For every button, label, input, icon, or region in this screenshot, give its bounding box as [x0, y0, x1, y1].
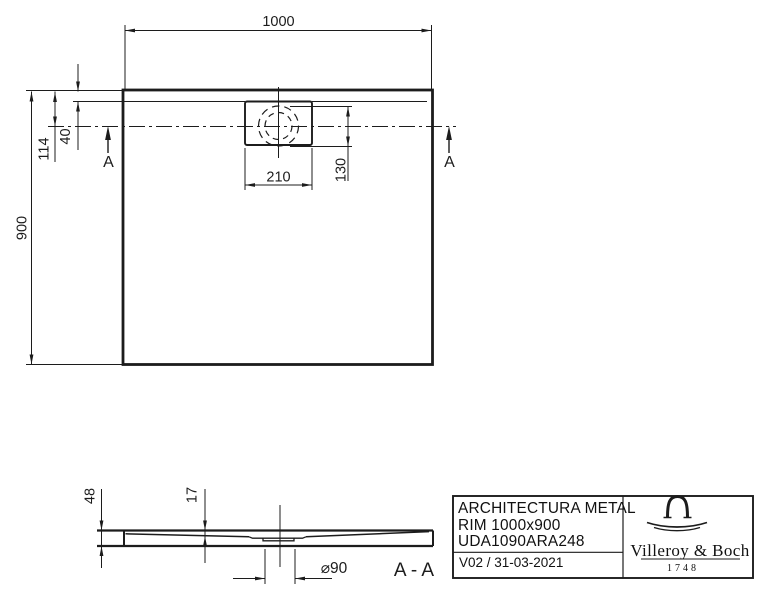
- section-marker-left: A: [103, 126, 114, 171]
- top-view: 1000 900 114 40: [15, 14, 457, 365]
- villeroy-boch-logo: Villeroy & Boch 1748: [630, 497, 749, 575]
- section-marker-left-label: A: [103, 154, 114, 171]
- floor-slope-right: [306, 532, 429, 537]
- section-marker-right-label: A: [444, 154, 455, 171]
- product-code: UDA1090ARA248: [458, 533, 585, 550]
- dim-17: 17: [185, 487, 207, 563]
- dim-17-label: 17: [185, 487, 201, 503]
- villeroy-boch-hoop-icon: [647, 497, 707, 531]
- dim-130-label: 130: [334, 158, 350, 182]
- dim-40-label: 40: [58, 128, 74, 144]
- section-marker-right: A: [444, 126, 455, 171]
- dim-900-label: 900: [15, 216, 31, 240]
- product-name: ARCHITECTURA METAL: [458, 500, 636, 517]
- drawing-svg: 1000 900 114 40: [0, 0, 765, 598]
- dim-48: 48: [83, 488, 104, 568]
- product-rim: RIM 1000x900: [458, 517, 561, 534]
- drain-recess-outer: [249, 537, 306, 538]
- dim-48-label: 48: [83, 488, 99, 504]
- tray-outline: [123, 90, 433, 365]
- dim-1000-label: 1000: [262, 14, 294, 30]
- section-view: 48 17 ⌀90 A - A: [83, 487, 435, 584]
- title-block: ARCHITECTURA METAL RIM 1000x900 UDA1090A…: [453, 496, 753, 578]
- dim-1000: 1000: [125, 14, 432, 89]
- brand-year: 1748: [667, 563, 699, 574]
- floor-slope-left: [126, 534, 250, 537]
- dim-210-label: 210: [266, 170, 290, 186]
- dim-114-label: 114: [37, 137, 53, 160]
- revision-date: V02 / 31-03-2021: [459, 555, 563, 570]
- dim-drain-diameter-label: ⌀90: [321, 560, 348, 577]
- dim-40: 40: [58, 64, 80, 150]
- dim-drain-diameter: ⌀90: [233, 549, 348, 584]
- section-label: A - A: [394, 560, 434, 581]
- technical-drawing-sheet: 1000 900 114 40: [0, 0, 765, 598]
- brand-name: Villeroy & Boch: [630, 541, 749, 560]
